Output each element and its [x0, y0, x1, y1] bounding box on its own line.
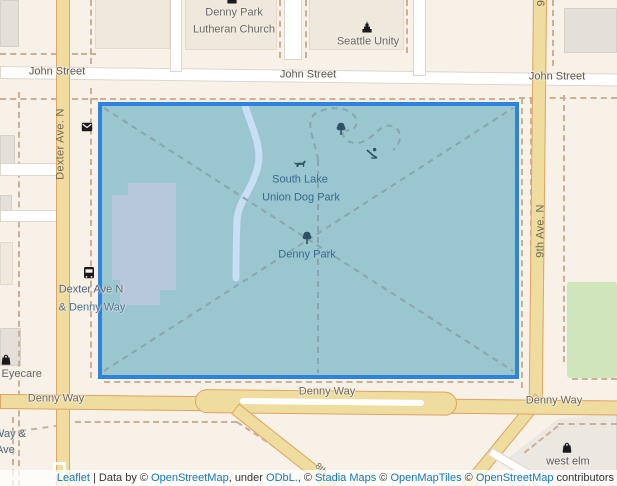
- attribution-link-odbl[interactable]: ODbL.: [266, 472, 298, 484]
- footpath: [305, 0, 307, 58]
- transit-label-dexter-denny-line2: & Denny Way: [59, 303, 126, 314]
- park-green-area: [567, 282, 617, 378]
- attribution-text: , under: [229, 472, 266, 484]
- street-label-denny-3: Denny Way: [526, 396, 582, 407]
- road: [284, 0, 302, 60]
- shop-bag-icon: [1, 353, 12, 365]
- park-label-dogpark-line1: South Lake: [272, 175, 328, 186]
- footpath: [558, 423, 617, 425]
- attribution-text: ©: [462, 472, 476, 484]
- footpath: [406, 0, 408, 53]
- attribution-link-leaflet[interactable]: Leaflet: [57, 472, 90, 484]
- street-label-9th-ave: 9th Ave. N: [536, 204, 547, 258]
- building: [0, 242, 13, 285]
- poi-label-eyecare: s Eyecare: [0, 369, 42, 380]
- street-label-john-3: John Street: [529, 72, 585, 83]
- dog-icon: [293, 158, 307, 168]
- attribution-text: , ©: [298, 472, 315, 484]
- map-viewport[interactable]: Denny Park Lutheran Church Seattle Unity…: [0, 0, 617, 486]
- post-box-icon: [82, 123, 93, 132]
- transit-label-partial-line1: Way &: [0, 429, 26, 440]
- shop-bag-icon: [562, 441, 573, 453]
- footpath: [72, 53, 96, 55]
- tree-icon: [335, 122, 347, 136]
- street-label-9th-partial: 9: [537, 0, 548, 6]
- poi-label-church-line1: Denny Park: [205, 8, 262, 19]
- church-icon: [361, 21, 373, 33]
- street-label-john-1: John Street: [29, 67, 85, 78]
- footpath: [72, 98, 98, 100]
- road-9th-ave-n: [529, 0, 547, 404]
- street-label-john-2: John Street: [280, 70, 336, 81]
- playground-icon: [366, 147, 378, 159]
- bus-icon: [84, 267, 95, 280]
- footpath: [18, 92, 20, 486]
- attribution-link-stadia-maps[interactable]: Stadia Maps: [315, 472, 376, 484]
- footpath: [0, 98, 57, 100]
- poi-label-church-line2: Lutheran Church: [193, 25, 275, 36]
- footpath: [552, 0, 554, 66]
- attribution-text: ©: [376, 472, 390, 484]
- attribution-link-openstreetmap-2[interactable]: OpenStreetMap: [476, 472, 554, 484]
- park-label-denny-park: Denny Park: [278, 250, 335, 261]
- attribution-link-openstreetmap[interactable]: OpenStreetMap: [151, 472, 229, 484]
- building: [564, 8, 617, 53]
- church-icon: [226, 0, 238, 4]
- footpath: [0, 53, 57, 55]
- footpath: [75, 421, 237, 423]
- road: [0, 163, 57, 176]
- attribution-text: | Data by ©: [90, 472, 151, 484]
- footpath: [279, 0, 281, 58]
- transit-label-dexter-denny-line1: Dexter Ave N: [59, 285, 124, 296]
- attribution-link-openmaptiles[interactable]: OpenMapTiles: [390, 472, 461, 484]
- tree-icon: [301, 231, 313, 245]
- attribution-bar: Leaflet | Data by © OpenStreetMap, under…: [0, 470, 617, 486]
- attribution-text: contributors: [553, 472, 614, 484]
- footpath: [90, 88, 92, 378]
- street-label-denny-1: Denny Way: [28, 394, 84, 405]
- footpath: [521, 98, 523, 388]
- road: [0, 210, 57, 222]
- road: [413, 0, 426, 76]
- footpath: [104, 381, 514, 383]
- footpath: [572, 378, 617, 380]
- footpath: [100, 98, 515, 100]
- transit-label-partial-line2: Ave: [0, 445, 15, 456]
- stream: [236, 106, 259, 278]
- footpath: [563, 95, 565, 362]
- poi-label-west-elm: west elm: [546, 457, 589, 468]
- street-label-denny-2: Denny Way: [299, 387, 355, 398]
- street-label-dexter: Dexter Ave. N: [56, 108, 67, 180]
- poi-label-seattle-unity: Seattle Unity: [337, 37, 399, 48]
- building: [95, 0, 170, 49]
- park-label-dogpark-line2: Union Dog Park: [262, 193, 340, 204]
- road: [170, 0, 182, 72]
- building: [0, 0, 19, 47]
